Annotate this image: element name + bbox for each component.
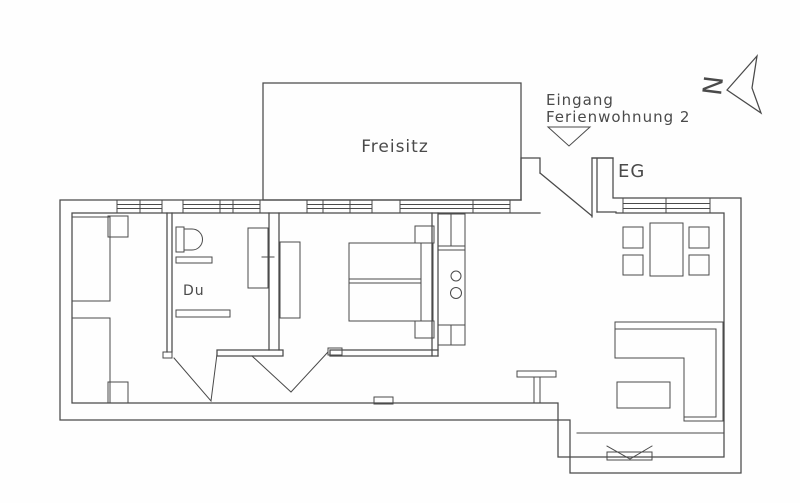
shower-tray-edge [176, 310, 230, 317]
side-table [517, 371, 556, 403]
kitchen-counter-divisions [438, 214, 465, 345]
wall-end-plate-1 [163, 352, 172, 358]
door-swing-bedroom [252, 352, 328, 392]
kitchen-unit [438, 214, 465, 345]
terrace-outline: Freisitz [263, 83, 521, 200]
window-2 [183, 200, 260, 213]
door-swings [174, 352, 328, 401]
burner-icon-1 [451, 271, 461, 281]
bath-cabinet [248, 228, 268, 288]
bed-left-top [72, 217, 110, 301]
sink-counter [176, 257, 212, 263]
bedroom-furniture [280, 226, 434, 338]
north-letter: N [695, 74, 727, 98]
wall-bath-hall-bar [217, 350, 283, 356]
north-symbol: N [695, 56, 761, 113]
corner-sofa [615, 322, 723, 421]
wall-bedroom-hall [330, 350, 438, 356]
entrance-label-line1: Eingang [546, 91, 614, 109]
coffee-table [617, 382, 670, 408]
nightstand-bottom [415, 321, 434, 338]
entrance-left-jamb [521, 158, 540, 200]
double-bed-lines [349, 243, 421, 321]
bed-left-bottom [72, 318, 110, 403]
entrance-annotation: Eingang Ferienwohnung 2 EG [546, 91, 690, 182]
floor-plan-canvas: Freisitz [0, 0, 800, 503]
chair-bottom-right [689, 255, 709, 275]
bed-left-bottom-headboard [108, 382, 128, 403]
entrance-door-leaf [540, 173, 592, 216]
hearth-marker-icon [607, 446, 652, 460]
wardrobe [280, 242, 300, 318]
left-room-furniture [72, 216, 128, 403]
wall-leftroom-bath [167, 213, 172, 352]
window-1 [117, 200, 162, 213]
door-swing-bath [174, 354, 217, 401]
bed-left-top-headboard [108, 216, 128, 237]
window-4 [400, 200, 510, 213]
north-arrow-icon [727, 56, 761, 113]
entrance-label-line2: Ferienwohnung 2 [546, 108, 690, 126]
nightstand-top [415, 226, 434, 243]
wall-bath-bedroom [269, 213, 279, 350]
entrance-right-jamb [592, 158, 613, 217]
living-room-furniture [517, 223, 723, 460]
bathroom-fixtures: Du [176, 227, 274, 317]
chair-bottom-left [623, 255, 643, 275]
chair-top-left [623, 227, 643, 248]
dining-table [650, 223, 683, 276]
floor-level-label: EG [618, 161, 645, 182]
burner-icon-2 [451, 288, 462, 299]
terrace-label: Freisitz [361, 137, 429, 157]
entrance-arrow-icon [548, 127, 590, 146]
window-3 [307, 200, 372, 213]
shower-label: Du [183, 283, 205, 299]
window-5 [623, 198, 710, 213]
toilet-bowl-icon [184, 229, 203, 250]
toilet-tank-icon [176, 227, 184, 252]
chair-top-right [689, 227, 709, 248]
double-bed [349, 243, 433, 321]
